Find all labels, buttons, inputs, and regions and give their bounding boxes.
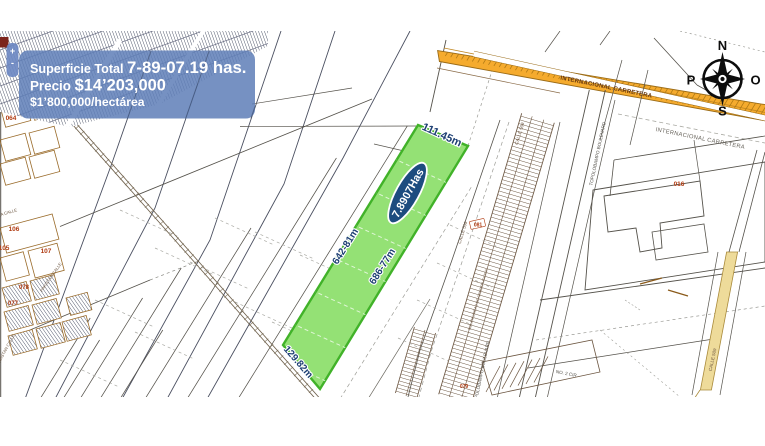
svg-text:P: P — [687, 73, 696, 88]
svg-text:064: 064 — [6, 115, 17, 122]
svg-text:+: + — [10, 46, 15, 56]
svg-text:106: 106 — [9, 226, 20, 233]
svg-text:079: 079 — [460, 384, 469, 390]
svg-text:105: 105 — [0, 245, 10, 252]
svg-text:N: N — [718, 38, 727, 53]
svg-text:Precio $14’203,000: Precio $14’203,000 — [30, 77, 166, 95]
svg-text:078: 078 — [19, 285, 30, 291]
svg-text:-: - — [11, 58, 14, 68]
svg-text:016: 016 — [674, 181, 685, 188]
svg-text:S: S — [718, 104, 727, 119]
svg-text:O: O — [750, 73, 760, 88]
svg-text:081: 081 — [474, 223, 483, 229]
svg-text:$1’800,000/hectárea: $1’800,000/hectárea — [30, 95, 145, 109]
svg-text:107: 107 — [41, 248, 52, 255]
svg-text:077: 077 — [8, 301, 19, 307]
